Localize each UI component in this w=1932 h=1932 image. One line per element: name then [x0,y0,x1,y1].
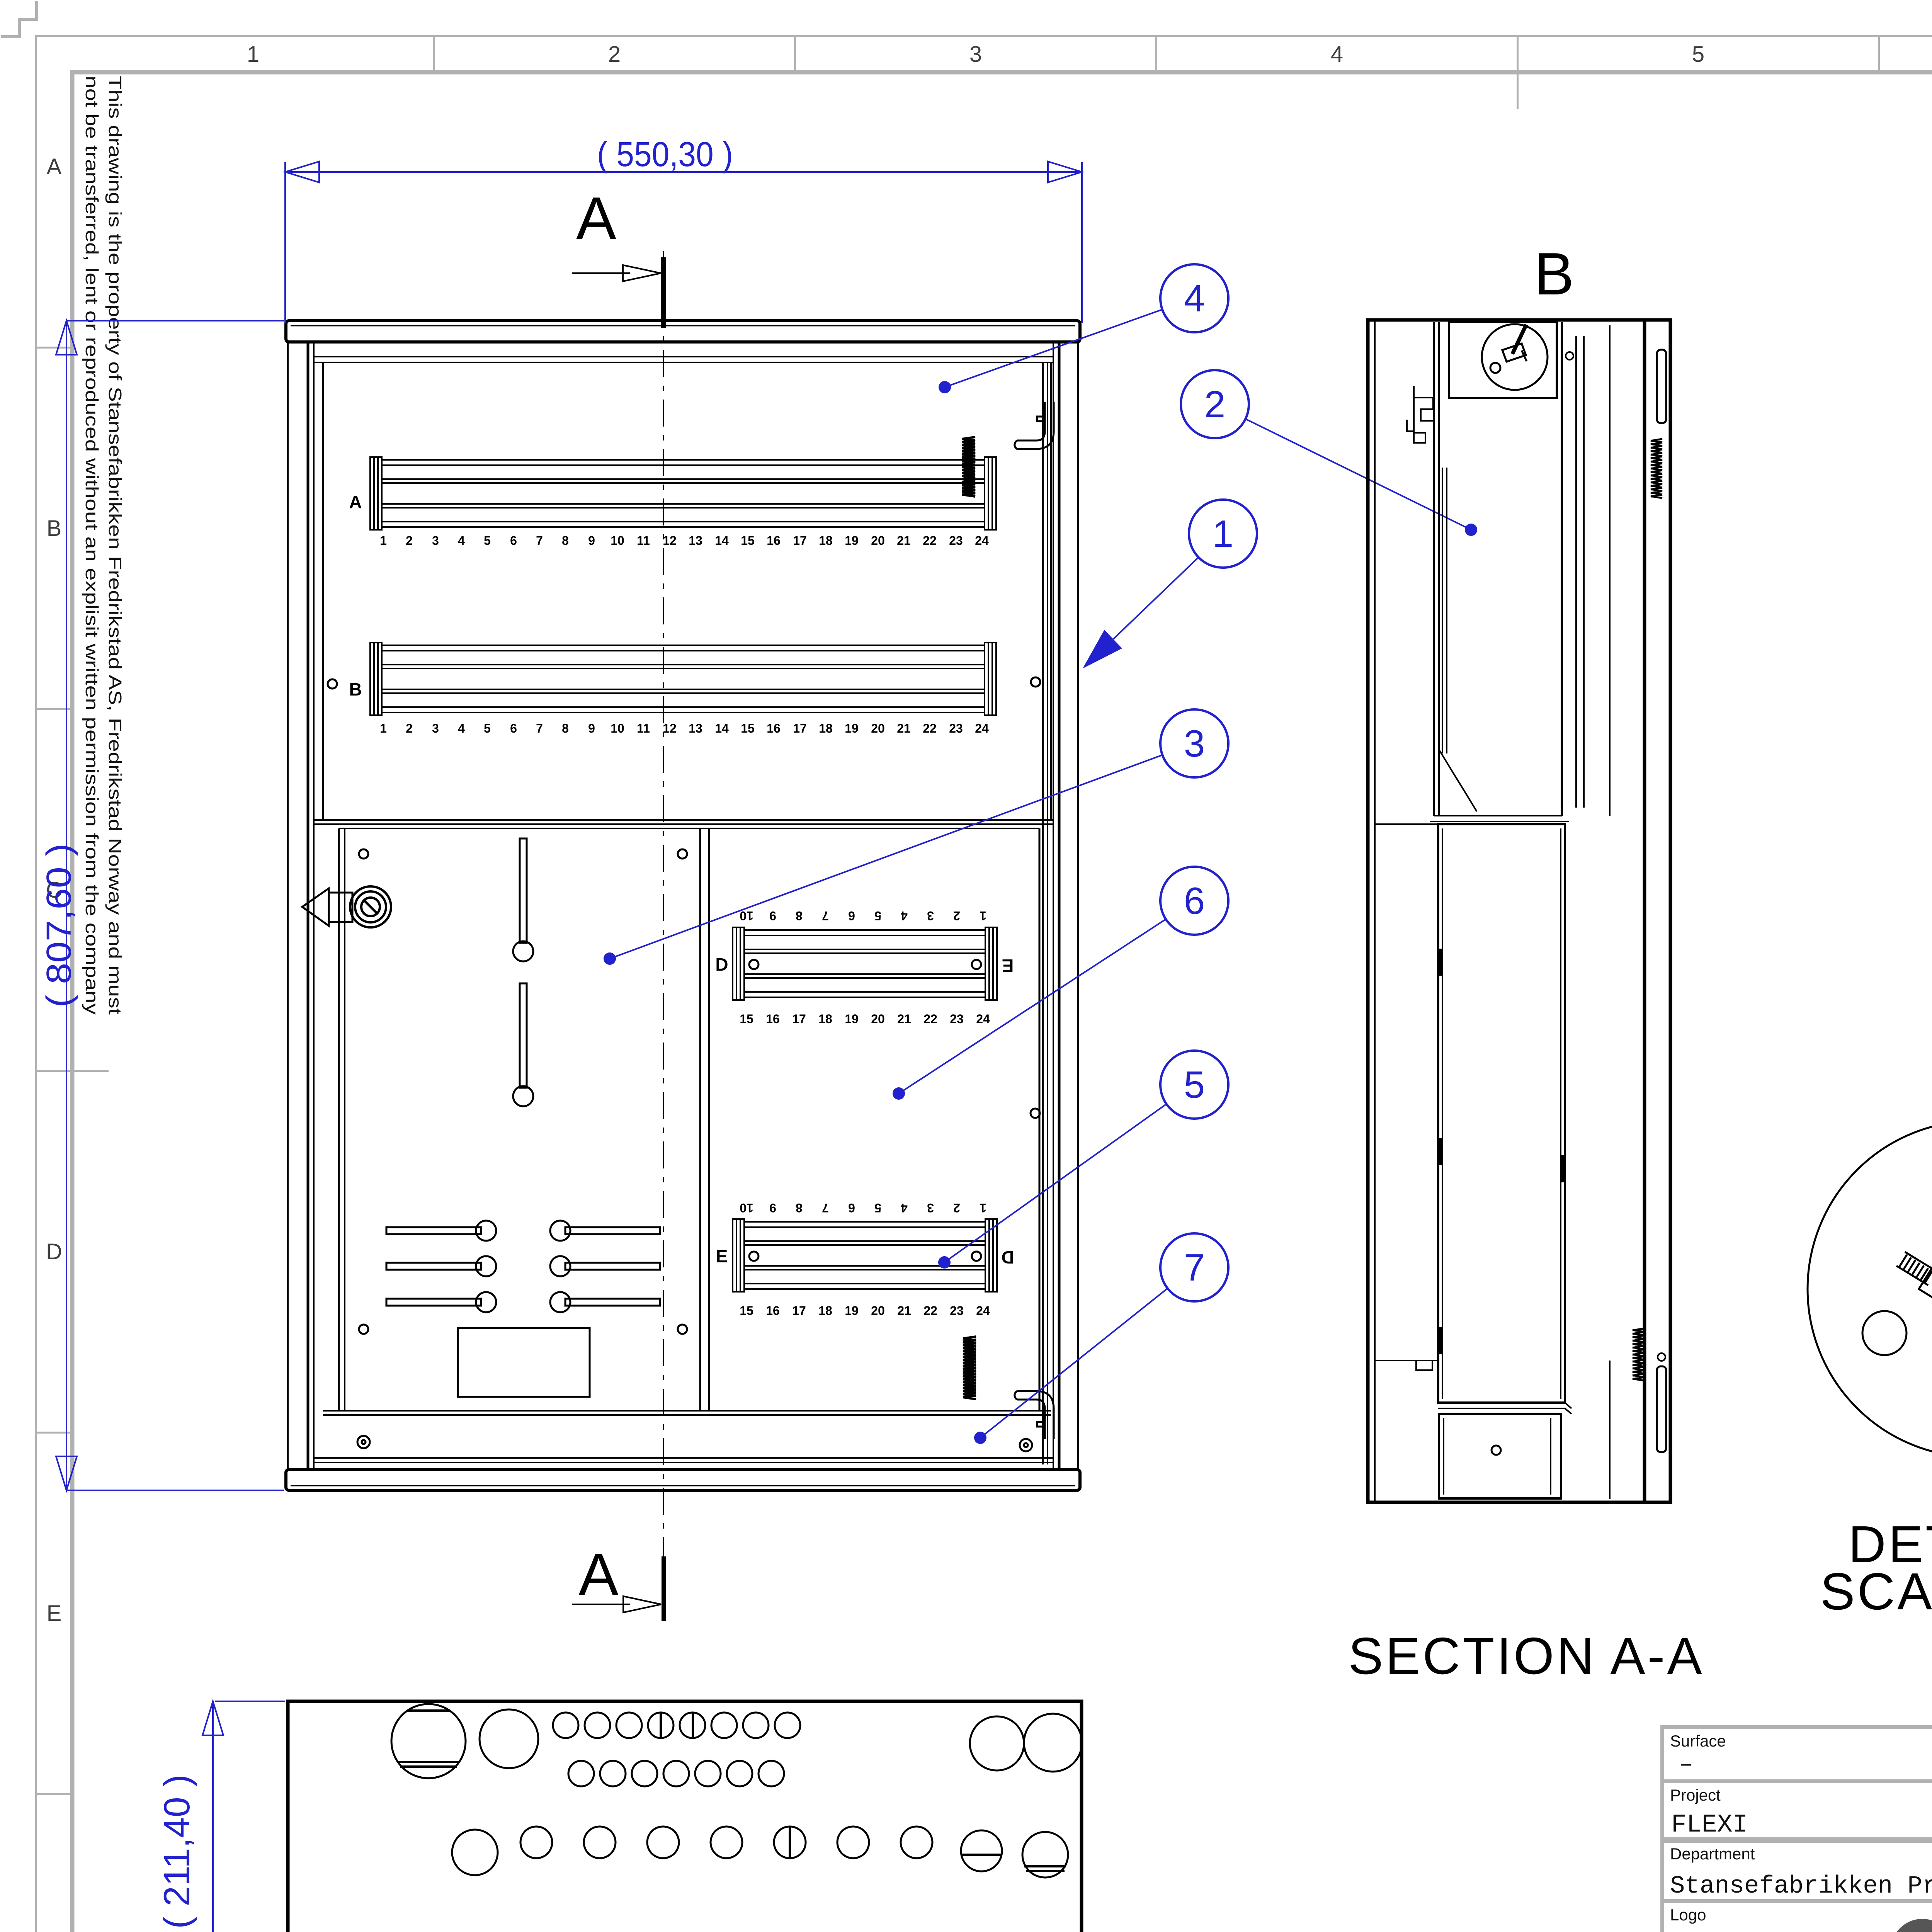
svg-text:7: 7 [536,534,543,548]
svg-text:3: 3 [927,909,934,923]
svg-text:20: 20 [871,721,885,735]
svg-text:2: 2 [1204,383,1226,425]
svg-text:–: – [1679,1752,1693,1778]
svg-text:15: 15 [741,721,755,735]
svg-text:7: 7 [536,721,543,735]
svg-text:19: 19 [845,534,859,548]
svg-text:( 807,60 ): ( 807,60 ) [40,844,78,1008]
svg-text:( 550,30 ): ( 550,30 ) [597,135,733,174]
svg-text:6: 6 [510,721,517,735]
svg-text:7: 7 [822,909,829,923]
svg-text:17: 17 [793,534,807,548]
svg-text:2: 2 [608,42,621,67]
svg-text:not be transferred, lent or re: not be transferred, lent or reproduced w… [82,76,102,1015]
svg-text:23: 23 [949,721,963,735]
svg-text:4: 4 [1184,277,1205,320]
svg-text:D: D [46,1239,62,1264]
svg-text:E: E [47,1601,62,1626]
svg-text:17: 17 [792,1012,806,1026]
svg-text:E: E [1002,956,1014,976]
svg-text:4: 4 [458,721,465,735]
svg-text:20: 20 [871,1304,885,1318]
svg-text:A: A [349,492,362,512]
svg-text:D: D [1001,1247,1014,1267]
svg-text:12: 12 [663,534,677,548]
svg-text:18: 18 [818,1304,832,1318]
svg-text:19: 19 [845,1304,859,1318]
svg-text:2: 2 [953,1201,960,1215]
svg-text:This drawing is the property o: This drawing is the property of Stansefa… [105,76,125,1015]
svg-text:5: 5 [484,534,491,548]
svg-text:8: 8 [796,909,803,923]
svg-text:8: 8 [562,721,569,735]
svg-text:15: 15 [740,1012,753,1026]
svg-text:1: 1 [980,1201,986,1215]
svg-text:21: 21 [897,534,911,548]
svg-text:10: 10 [611,721,624,735]
svg-text:24: 24 [975,721,989,735]
svg-text:12: 12 [663,721,677,735]
svg-text:19: 19 [845,1012,859,1026]
svg-text:B: B [47,516,62,541]
svg-text:SCALE 1 : 1: SCALE 1 : 1 [1820,1562,1932,1621]
svg-text:22: 22 [923,1012,937,1026]
svg-text:18: 18 [819,534,833,548]
svg-text:5: 5 [874,1201,881,1215]
svg-text:23: 23 [950,1012,964,1026]
svg-text:4: 4 [901,1201,908,1215]
svg-text:14: 14 [715,721,729,735]
svg-text:6: 6 [510,534,517,548]
svg-text:15: 15 [740,1304,753,1318]
svg-text:5: 5 [1692,42,1704,67]
svg-text:11: 11 [637,721,650,735]
svg-text:20: 20 [871,534,885,548]
svg-text:6: 6 [848,1201,855,1215]
svg-text:9: 9 [769,1201,776,1215]
svg-text:14: 14 [715,534,729,548]
svg-text:SECTION A-A: SECTION A-A [1348,1627,1704,1685]
svg-text:FLEXI: FLEXI [1671,1810,1748,1839]
svg-text:3: 3 [432,721,439,735]
svg-text:23: 23 [950,1304,964,1318]
svg-text:4: 4 [901,909,908,923]
svg-text:E: E [716,1246,728,1266]
svg-text:3: 3 [432,534,439,548]
svg-text:11: 11 [637,534,650,548]
svg-text:3: 3 [969,42,982,67]
svg-text:( 211,40 ): ( 211,40 ) [156,1774,197,1929]
svg-text:Project: Project [1670,1786,1721,1804]
svg-text:8: 8 [796,1201,803,1215]
svg-text:22: 22 [923,721,937,735]
svg-text:6: 6 [1184,879,1205,922]
svg-text:1: 1 [247,42,259,67]
svg-text:20: 20 [871,1012,885,1026]
svg-text:1: 1 [380,721,387,735]
svg-text:18: 18 [818,1012,832,1026]
svg-text:17: 17 [793,721,807,735]
svg-text:16: 16 [766,1304,780,1318]
svg-text:Logo: Logo [1670,1906,1706,1924]
svg-text:21: 21 [897,1304,911,1318]
svg-text:4: 4 [1331,42,1343,67]
svg-text:1: 1 [380,534,387,548]
svg-text:15: 15 [741,534,755,548]
svg-text:A: A [576,185,616,252]
svg-text:13: 13 [689,721,702,735]
svg-text:A: A [578,1541,619,1608]
svg-text:5: 5 [484,721,491,735]
svg-text:5: 5 [874,909,881,923]
svg-text:21: 21 [897,1012,911,1026]
svg-text:21: 21 [897,721,911,735]
svg-text:9: 9 [588,721,595,735]
svg-text:10: 10 [740,909,753,923]
svg-text:B: B [1534,240,1574,307]
svg-text:1: 1 [1213,512,1234,555]
svg-text:10: 10 [611,534,624,548]
svg-text:3: 3 [1184,722,1205,765]
svg-text:3: 3 [927,1201,934,1215]
svg-text:7: 7 [822,1201,829,1215]
svg-text:1: 1 [980,909,986,923]
svg-text:2: 2 [406,534,413,548]
svg-text:9: 9 [588,534,595,548]
svg-text:2: 2 [406,721,413,735]
svg-text:16: 16 [766,1012,780,1026]
svg-text:6: 6 [848,909,855,923]
svg-text:8: 8 [562,534,569,548]
svg-text:9: 9 [769,909,776,923]
svg-text:17: 17 [792,1304,806,1318]
svg-text:2: 2 [953,909,960,923]
svg-text:23: 23 [949,534,963,548]
svg-text:24: 24 [975,534,989,548]
svg-text:Stansefabrikken Products AS: Stansefabrikken Products AS [1670,1872,1932,1900]
svg-text:19: 19 [845,721,859,735]
svg-text:16: 16 [767,721,781,735]
svg-text:10: 10 [740,1201,753,1215]
svg-text:7: 7 [1184,1246,1205,1289]
svg-text:24: 24 [976,1012,990,1026]
svg-text:22: 22 [923,1304,937,1318]
svg-text:B: B [349,679,362,699]
svg-text:A: A [47,154,62,179]
svg-text:Department: Department [1670,1845,1755,1863]
svg-text:22: 22 [923,534,937,548]
svg-text:5: 5 [1184,1063,1205,1106]
svg-text:D: D [715,954,728,975]
svg-text:13: 13 [689,534,702,548]
svg-text:16: 16 [767,534,781,548]
svg-text:Surface: Surface [1670,1732,1726,1750]
svg-text:24: 24 [976,1304,990,1318]
svg-text:18: 18 [819,721,833,735]
svg-text:4: 4 [458,534,465,548]
